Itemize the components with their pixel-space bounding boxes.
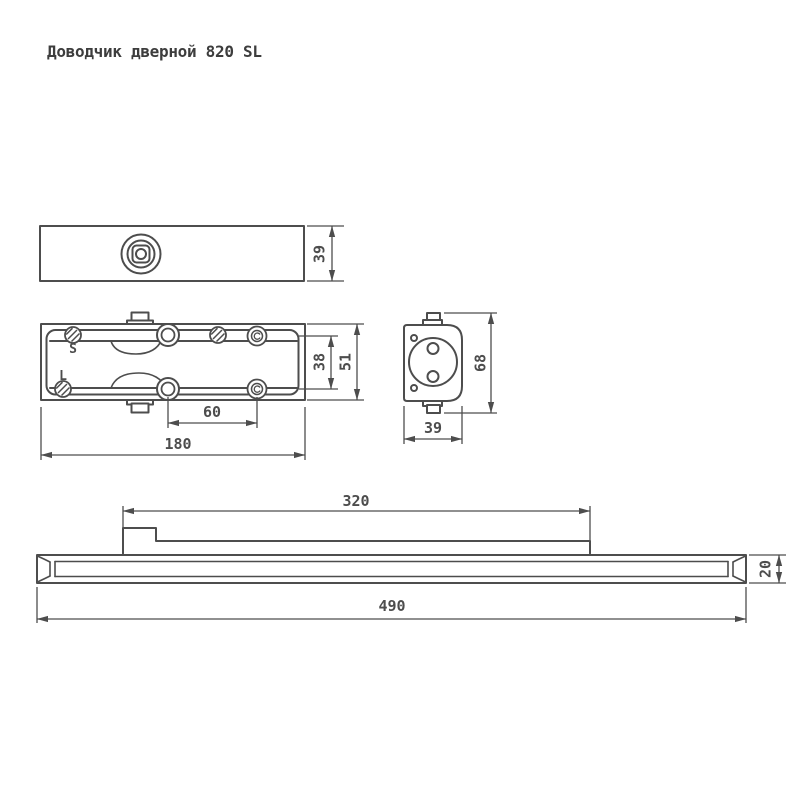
drawing-page: Доводчик дверной 820 SL (0, 0, 800, 800)
dim-rail-length: 490 (37, 587, 746, 623)
valve-screw-bottom (248, 380, 267, 399)
label-spring-s: S (69, 342, 77, 357)
slider-block-outline (123, 528, 590, 554)
dim-plan-spacing: 60 (168, 397, 257, 428)
end-bottom-tab-cap (427, 405, 440, 413)
dim-plan-length: 180 (41, 407, 305, 460)
dim-label-490: 490 (378, 597, 405, 615)
dim-label-60: 60 (203, 403, 221, 421)
dim-label-39-top: 39 (311, 245, 329, 263)
top-view: 39 (40, 226, 344, 281)
valve-screw-top (248, 327, 267, 346)
dim-label-39-end: 39 (424, 419, 442, 437)
top-view-body (40, 226, 304, 281)
dim-label-38: 38 (311, 353, 329, 371)
dim-label-20: 20 (757, 560, 775, 578)
dim-label-180: 180 (164, 435, 191, 453)
plan-view: S L 38 51 60 (41, 313, 364, 461)
dim-top-width: 39 (307, 226, 344, 281)
dim-label-68: 68 (472, 354, 490, 372)
dim-rail-slider: 320 (123, 492, 590, 541)
rail-view: 320 490 20 (37, 492, 786, 623)
adjust-screw-s (65, 327, 81, 343)
label-spring-l: L (59, 369, 67, 384)
pinion-top (157, 324, 179, 346)
dim-label-51: 51 (337, 353, 355, 371)
dim-rail-height: 20 (749, 555, 786, 583)
adjust-screw-top-mid (210, 327, 226, 343)
bottom-boss-cap (132, 404, 149, 413)
end-view: 68 39 (404, 313, 497, 444)
dim-label-320: 320 (342, 492, 369, 510)
technical-drawing: 39 S L (0, 0, 800, 800)
rail-outline (37, 555, 746, 583)
pinion-bottom (157, 378, 179, 400)
